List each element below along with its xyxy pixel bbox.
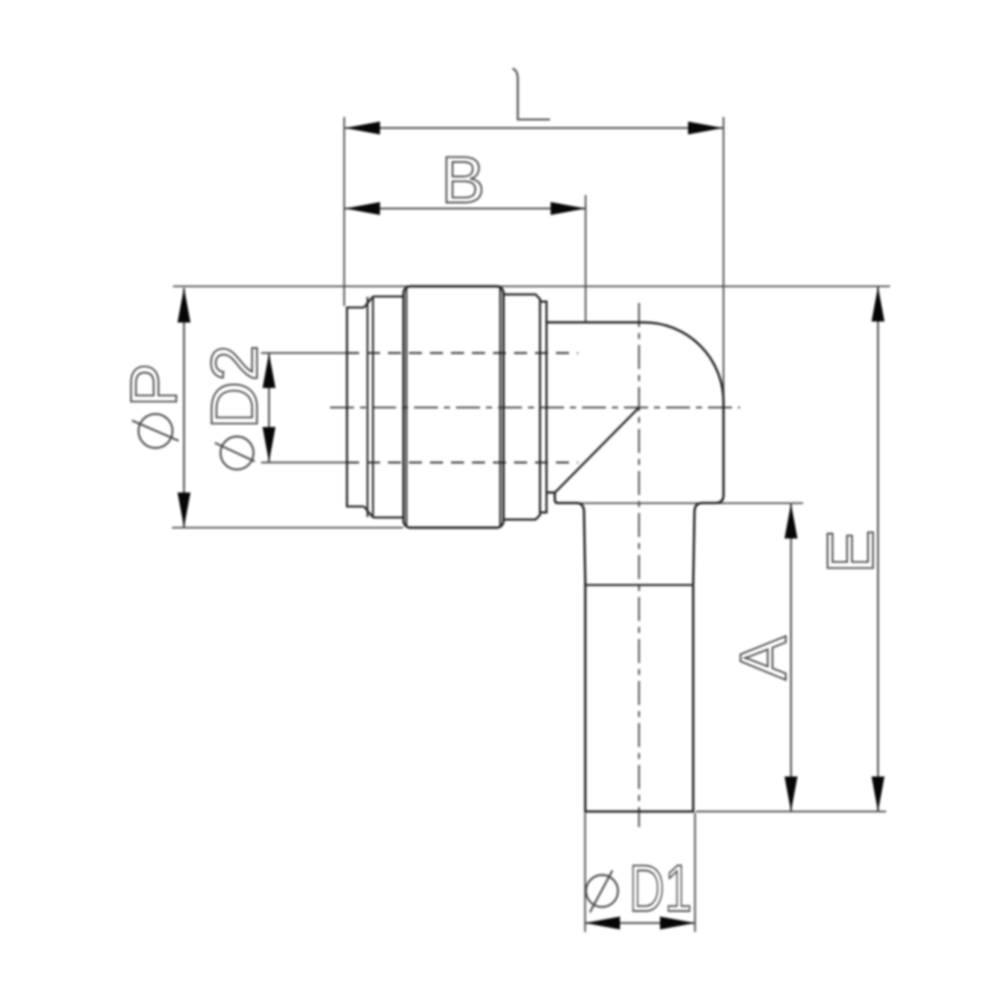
svg-text:P: P: [116, 363, 190, 407]
svg-text:D1: D1: [629, 851, 692, 925]
svg-text:E: E: [813, 529, 887, 573]
svg-text:A: A: [726, 636, 800, 680]
svg-text:D2: D2: [197, 345, 271, 429]
svg-text:B: B: [441, 143, 485, 217]
